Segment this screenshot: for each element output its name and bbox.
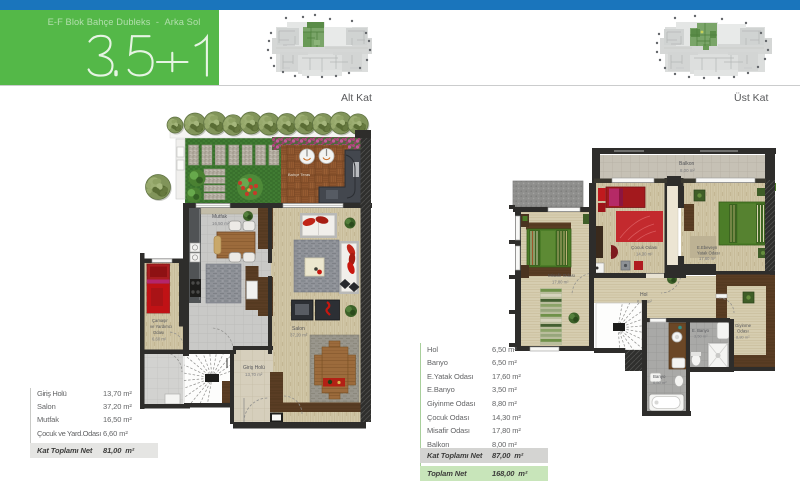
svg-text:Banyo: Banyo xyxy=(653,374,666,379)
svg-text:17,60 m²: 17,60 m² xyxy=(699,256,716,261)
svg-text:17,80 m²: 17,80 m² xyxy=(552,280,569,285)
svg-text:16,50 m²: 16,50 m² xyxy=(212,221,230,226)
svg-text:Misafir Odası: Misafir Odası xyxy=(548,273,575,278)
svg-text:3,50 m²: 3,50 m² xyxy=(694,334,708,339)
svg-text:Salon: Salon xyxy=(292,326,305,332)
svg-text:Çamaşır: Çamaşır xyxy=(152,318,168,323)
svg-text:Odası: Odası xyxy=(737,329,749,334)
svg-text:E.Ebeveyn: E.Ebeveyn xyxy=(697,245,718,250)
svg-text:E. Banyo: E. Banyo xyxy=(692,328,710,333)
svg-text:ve Yardımcı: ve Yardımcı xyxy=(150,324,172,329)
svg-text:14,30 m²: 14,30 m² xyxy=(636,252,653,257)
svg-text:13,70 m²: 13,70 m² xyxy=(245,372,263,377)
svg-text:Hol: Hol xyxy=(640,292,648,298)
svg-text:8,80 m²: 8,80 m² xyxy=(736,335,750,340)
svg-text:6,50 m²: 6,50 m² xyxy=(653,380,667,385)
svg-text:Mutfak: Mutfak xyxy=(212,214,228,220)
svg-text:Giriş Holü: Giriş Holü xyxy=(243,365,265,371)
svg-text:Çocuk Odası: Çocuk Odası xyxy=(631,245,658,250)
svg-text:6,60 m²: 6,60 m² xyxy=(152,337,167,342)
svg-text:37,20 m²: 37,20 m² xyxy=(290,333,308,338)
svg-text:Giyinme: Giyinme xyxy=(735,323,752,328)
svg-text:8,00 m²: 8,00 m² xyxy=(680,168,695,173)
svg-text:Yatak Odası: Yatak Odası xyxy=(697,251,720,256)
svg-text:Balkon: Balkon xyxy=(679,161,695,167)
svg-text:Bahçe Teras: Bahçe Teras xyxy=(288,172,310,177)
svg-text:Odası: Odası xyxy=(153,330,164,335)
